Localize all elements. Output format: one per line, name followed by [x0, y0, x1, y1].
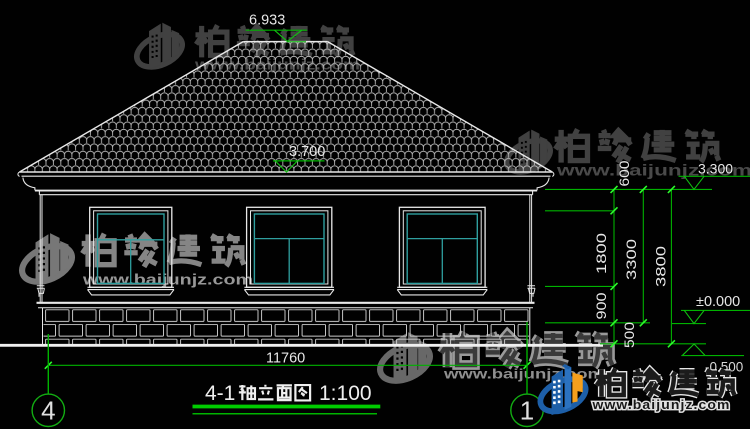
svg-text:900: 900	[594, 293, 609, 320]
svg-text:www.baijunjz.com: www.baijunjz.com	[82, 273, 253, 289]
svg-text:4-1: 4-1	[205, 382, 235, 405]
svg-text:3.300: 3.300	[698, 161, 733, 177]
svg-text:3.700: 3.700	[289, 144, 325, 160]
svg-text:1:100: 1:100	[319, 382, 372, 405]
svg-text:3800: 3800	[654, 246, 669, 287]
svg-text:www.baijunjz.com: www.baijunjz.com	[591, 398, 730, 412]
svg-text:500: 500	[622, 322, 637, 348]
svg-text:11760: 11760	[266, 351, 305, 367]
svg-text:600: 600	[617, 161, 632, 187]
svg-text:6.933: 6.933	[249, 13, 285, 29]
svg-text:4: 4	[41, 396, 55, 426]
svg-text:1800: 1800	[594, 233, 609, 274]
svg-text:±0.000: ±0.000	[696, 294, 740, 310]
svg-text:3300: 3300	[624, 239, 639, 280]
svg-text:1: 1	[520, 396, 534, 426]
